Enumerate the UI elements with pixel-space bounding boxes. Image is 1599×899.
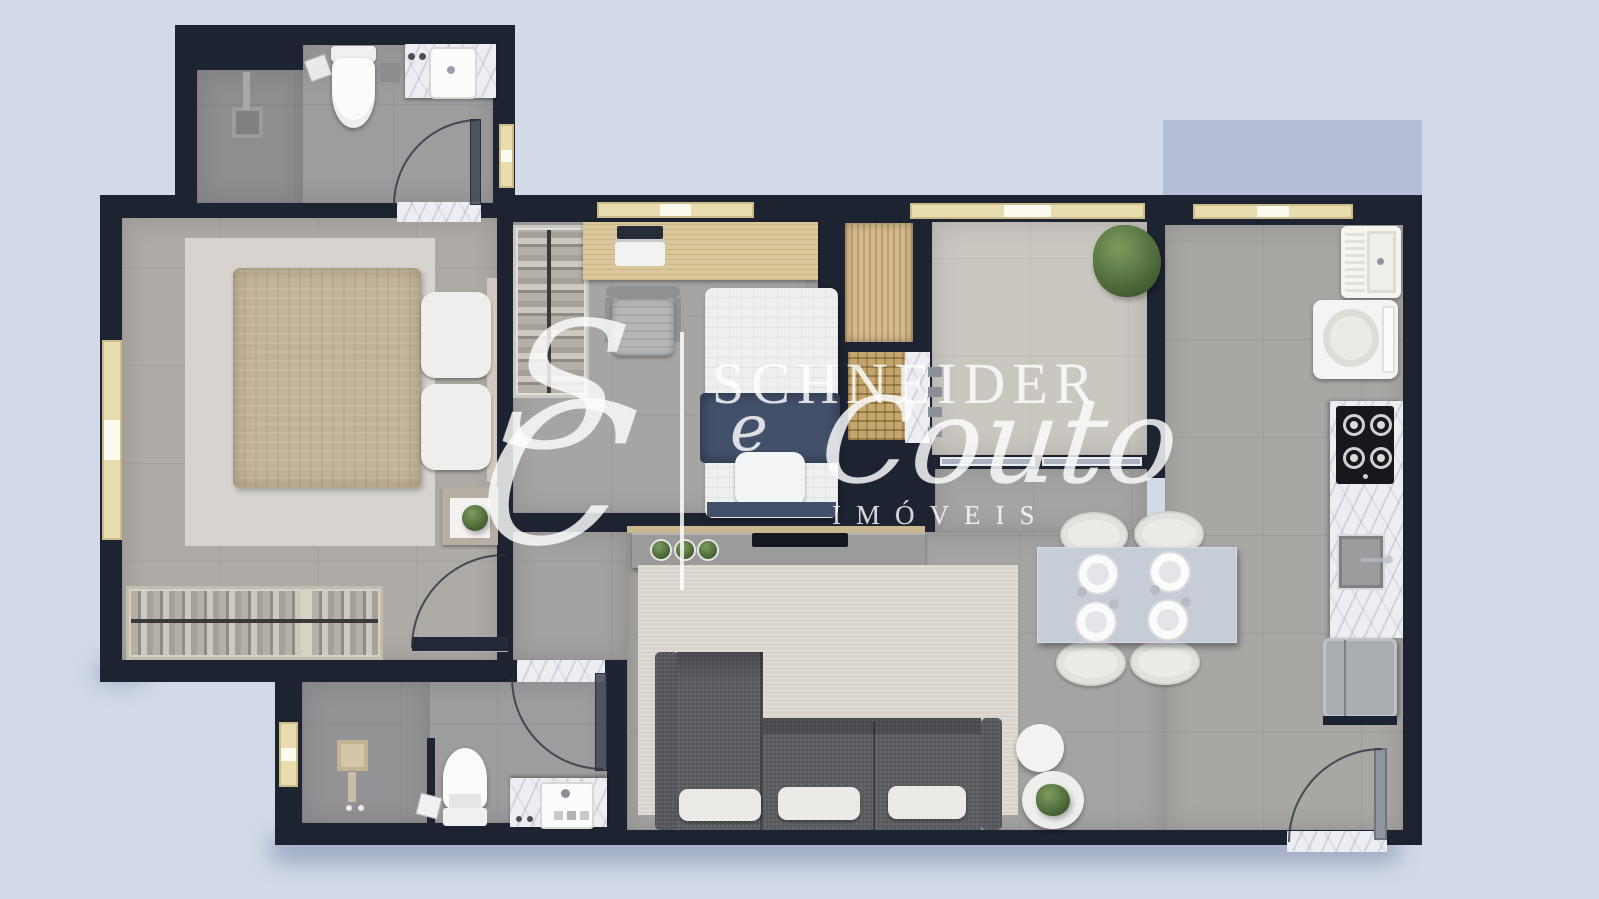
shower-head xyxy=(232,107,263,138)
sofa-chaise-armrest xyxy=(655,652,679,830)
watermark-brand-script: Couto xyxy=(816,382,1184,500)
shower2-drain-1 xyxy=(346,805,352,811)
shower2-drain-2 xyxy=(358,805,364,811)
cooktop-burner-3 xyxy=(1343,447,1365,469)
watermark-brand-sub: IMÓVEIS xyxy=(832,500,1050,531)
side-table-small xyxy=(1016,724,1064,772)
watermark-divider xyxy=(680,332,684,590)
faucet-handle-left xyxy=(408,53,415,60)
kitchen-faucet-base xyxy=(1384,555,1393,564)
watermark-monogram-c: C xyxy=(468,378,645,573)
refrigerator-shadow xyxy=(1323,716,1397,725)
cooktop-burner-4 xyxy=(1370,447,1392,469)
vanity2-handle-1 xyxy=(516,816,522,822)
faucet-bathroom2 xyxy=(561,789,570,798)
cooktop-knob xyxy=(1363,474,1368,479)
toilet-bowl xyxy=(332,58,375,128)
window-master-bedroom xyxy=(102,340,122,540)
window-balcony xyxy=(910,203,1145,219)
wall-niche xyxy=(380,63,400,82)
shower2-head xyxy=(337,740,368,771)
dining-cup-1 xyxy=(1077,587,1087,597)
bed-pillow-bottom xyxy=(421,384,491,470)
vanity2-soap-1 xyxy=(554,811,563,820)
bed-pillow-top xyxy=(421,292,491,378)
console-plant-2 xyxy=(676,541,694,559)
dining-chair-4 xyxy=(1130,639,1200,685)
faucet-handle-right xyxy=(419,53,426,60)
dining-cup-4 xyxy=(1181,597,1191,607)
laptop-body xyxy=(615,239,665,266)
vanity2-soap-2 xyxy=(567,811,576,820)
faucet-ensuite xyxy=(447,66,455,74)
window-bedroom2 xyxy=(597,202,754,218)
sofa-cushion-chaise xyxy=(679,789,761,821)
watermark-brand-conj: e xyxy=(730,392,768,466)
refrigerator xyxy=(1323,638,1397,718)
dining-table xyxy=(1037,547,1237,643)
wash-tub-ribs xyxy=(1345,232,1365,292)
cooktop-burner-2 xyxy=(1370,414,1392,436)
toilet2-seat xyxy=(449,794,481,808)
balcony-plant xyxy=(1093,225,1161,297)
sofa-cushion-right xyxy=(888,786,966,819)
exterior-shadow-block xyxy=(1163,120,1422,205)
sofa-cushion-mid xyxy=(778,787,860,820)
vanity2-handle-2 xyxy=(527,816,533,822)
wall-right xyxy=(1400,195,1422,845)
console-plant-3 xyxy=(699,541,717,559)
cooktop-burner-1 xyxy=(1343,414,1365,436)
window-ensuite xyxy=(499,124,514,188)
wash-tub-faucet xyxy=(1377,258,1384,265)
window-kitchen xyxy=(1193,204,1353,219)
refrigerator-door-seam xyxy=(1344,640,1346,716)
clothes-rack-garments-left xyxy=(131,591,301,655)
dining-cup-2 xyxy=(1150,585,1160,595)
double-bed-duvet xyxy=(233,268,421,488)
dining-cup-3 xyxy=(1109,599,1119,609)
console-plant-1 xyxy=(652,541,670,559)
floor-plan-scene: S C SCHNEIDER e Couto IMÓVEIS xyxy=(0,0,1599,899)
window-bathroom2 xyxy=(279,722,298,787)
closet-wardrobe xyxy=(845,223,913,342)
shower2-rail xyxy=(348,772,356,802)
laptop-screen xyxy=(617,226,663,239)
kitchen-sink xyxy=(1339,536,1383,588)
side-table-plant xyxy=(1036,784,1070,816)
sofa-seam xyxy=(873,722,875,830)
sofa-armrest-right xyxy=(981,718,1002,830)
washing-machine-panel xyxy=(1382,306,1395,373)
clothes-rack-garments-right xyxy=(312,591,378,655)
dining-chair-3 xyxy=(1056,640,1126,686)
clothes-rack-rod xyxy=(131,619,378,623)
washing-machine-lid xyxy=(1323,309,1379,367)
threshold-ensuite xyxy=(397,202,481,222)
vanity2-soap-3 xyxy=(580,811,589,820)
shower-rail xyxy=(243,72,250,110)
toilet2-tank xyxy=(443,808,487,826)
tv xyxy=(752,533,848,547)
